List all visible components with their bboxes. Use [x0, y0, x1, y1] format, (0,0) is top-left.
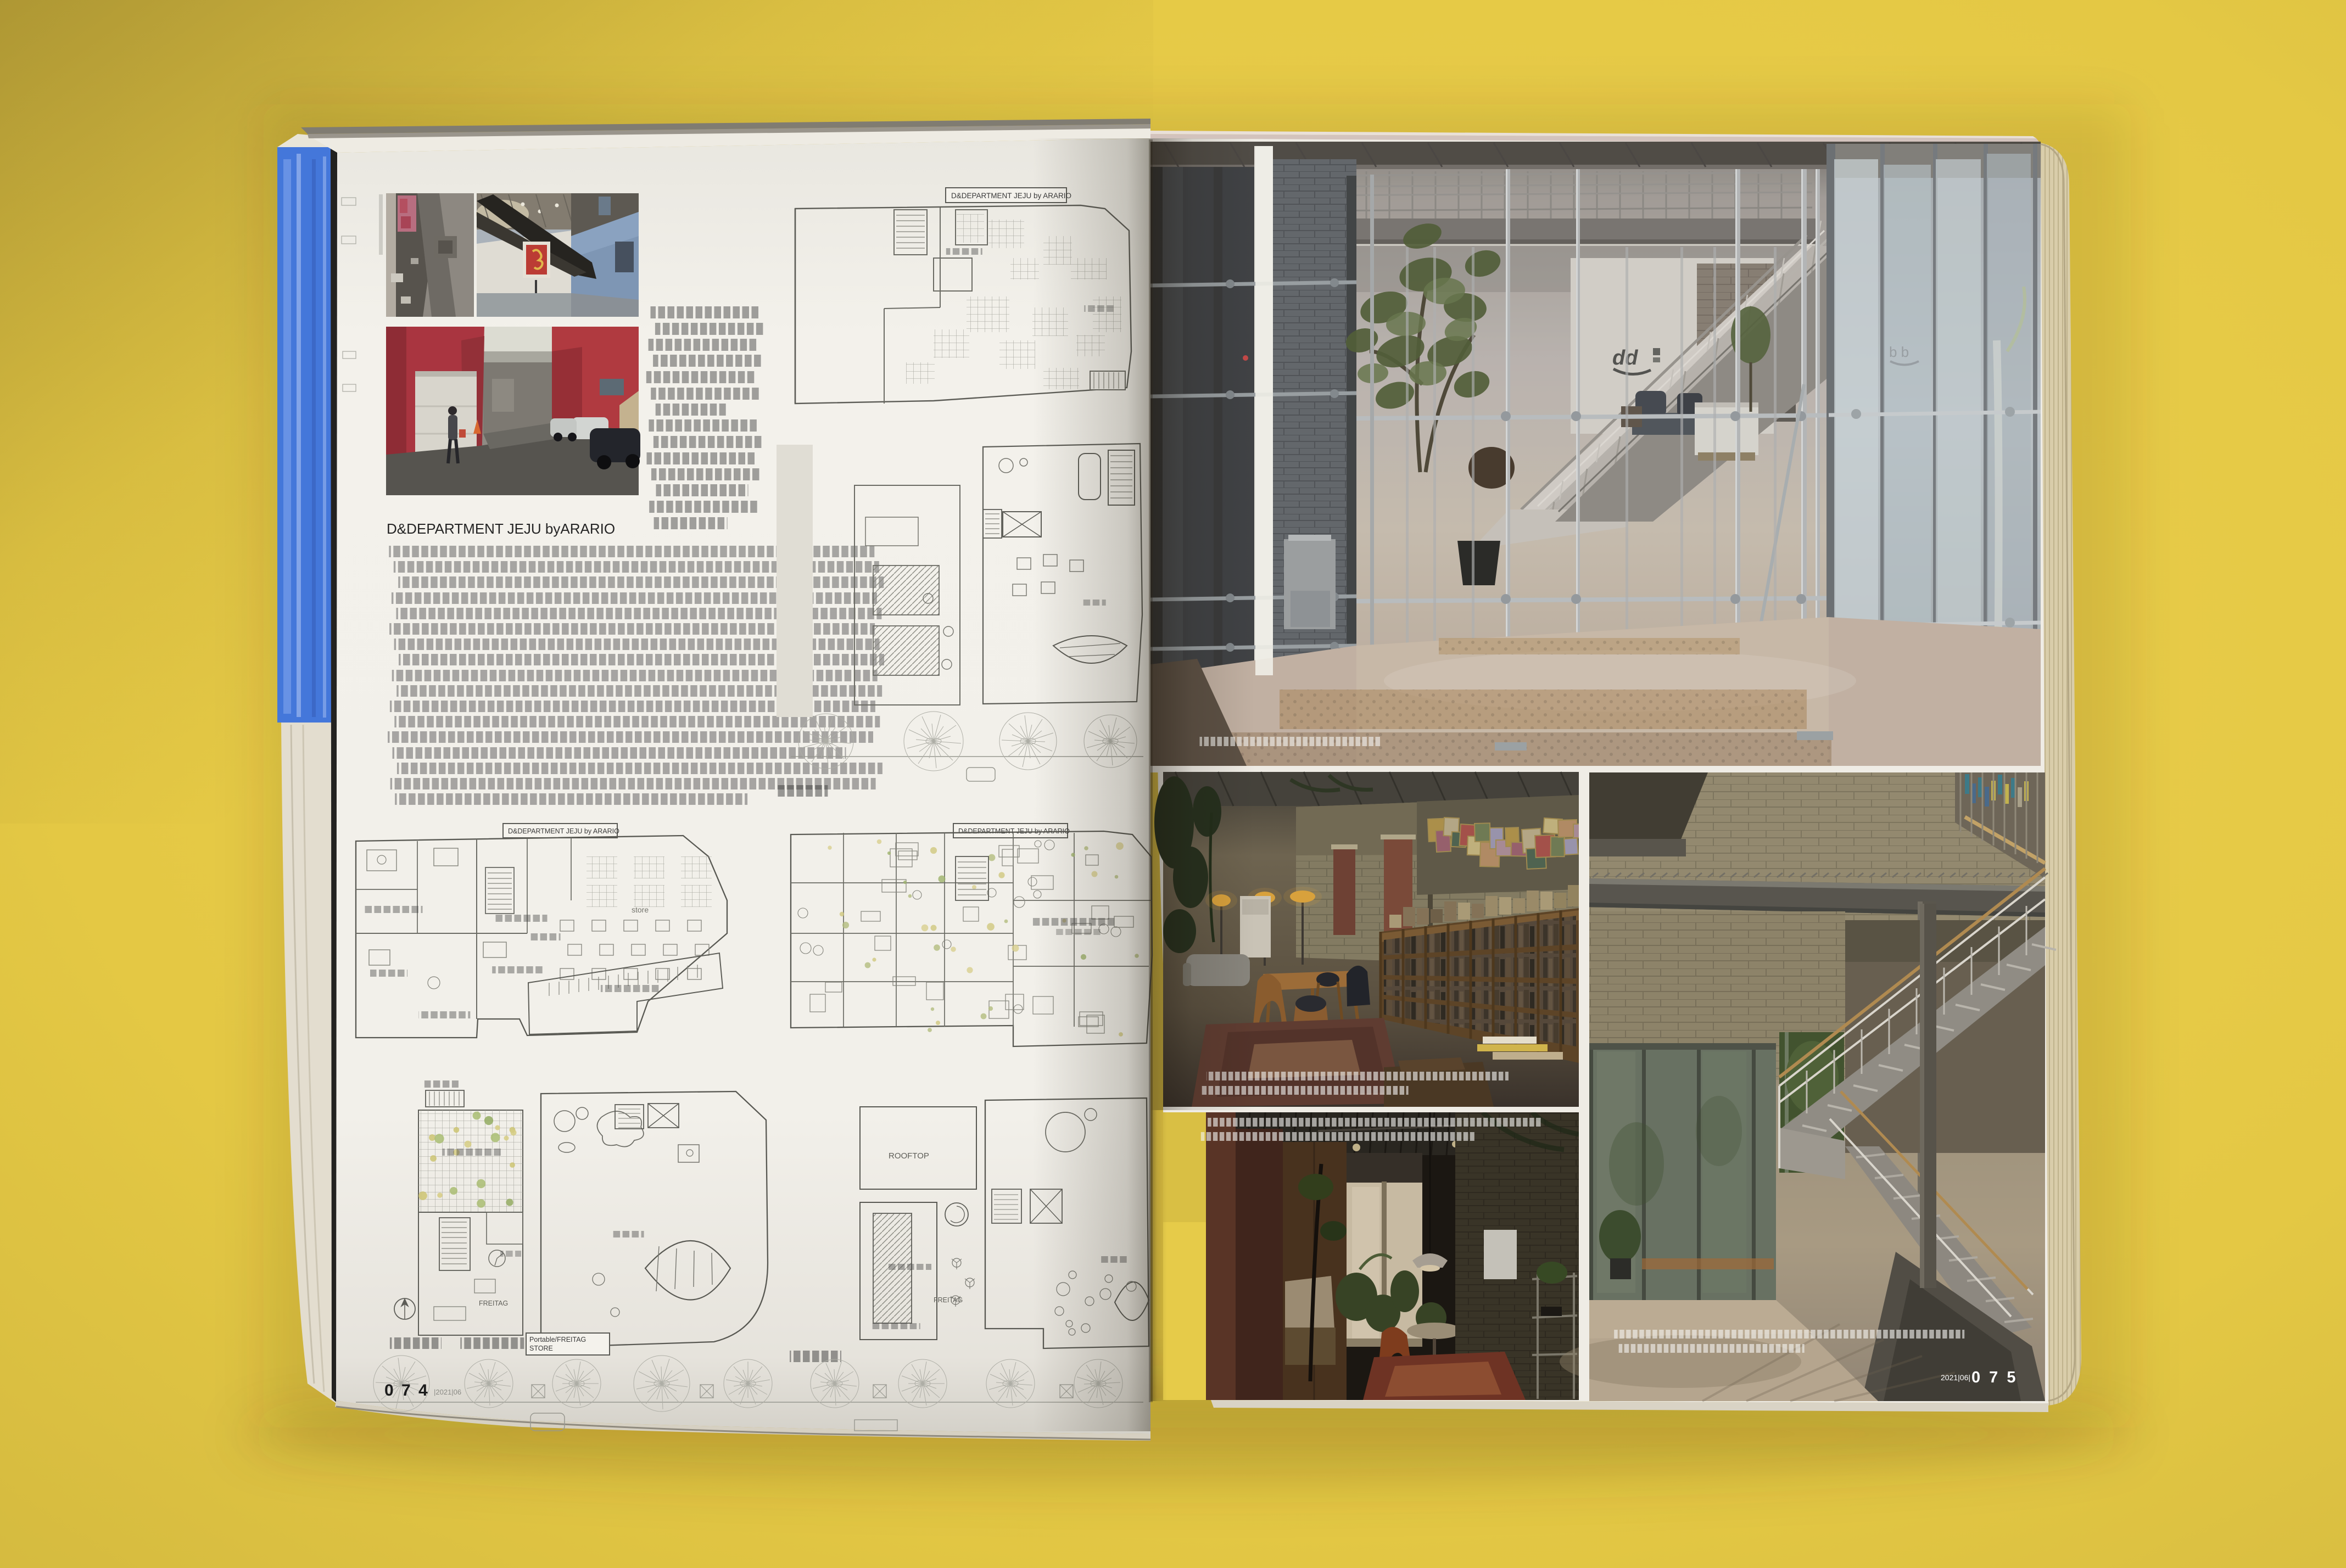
svg-text:D&DEPARTMENT JEJU by ARARIO: D&DEPARTMENT JEJU by ARARIO	[508, 827, 619, 835]
svg-text:STORE: STORE	[529, 1345, 553, 1352]
svg-text:FREITAG: FREITAG	[479, 1300, 508, 1307]
svg-text:store: store	[632, 905, 649, 914]
svg-text:0 7 5: 0 7 5	[1971, 1369, 2018, 1386]
svg-text:Portable/FREITAG: Portable/FREITAG	[529, 1336, 586, 1343]
svg-text:D&DEPARTMENT JEJU byARARIO: D&DEPARTMENT JEJU byARARIO	[387, 520, 615, 537]
svg-text:FREITAG: FREITAG	[934, 1296, 963, 1304]
svg-text:ROOFTOP: ROOFTOP	[889, 1151, 929, 1161]
svg-text:|2021|06: |2021|06	[434, 1388, 461, 1396]
svg-text:0 7 4: 0 7 4	[384, 1381, 429, 1399]
svg-text:2021|06|: 2021|06|	[1941, 1373, 1970, 1382]
